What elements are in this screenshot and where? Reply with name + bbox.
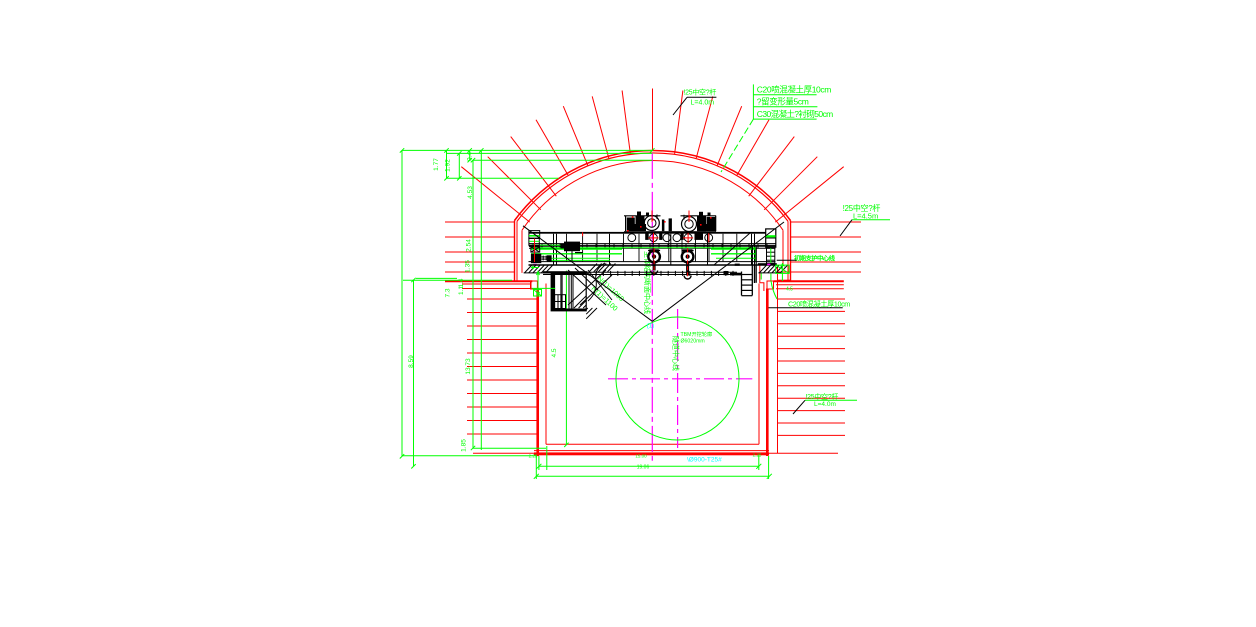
svg-text:?留变形量5cm: ?留变形量5cm — [757, 97, 809, 107]
svg-text:\Ø900-T25#: \Ø900-T25# — [687, 457, 722, 464]
svg-text:L=4.0m: L=4.0m — [691, 100, 715, 107]
svg-text:!25中空?杆: !25中空?杆 — [684, 88, 717, 97]
svg-text:L=4.0m: L=4.0m — [814, 401, 836, 408]
svg-text:(1): (1) — [647, 323, 654, 329]
svg-text:1.77: 1.77 — [433, 158, 440, 171]
svg-text:1.35: 1.35 — [465, 260, 472, 273]
svg-text:Ø6020mm: Ø6020mm — [681, 339, 705, 345]
svg-text:TBM开挖轮廓: TBM开挖轮廓 — [681, 330, 713, 338]
svg-text:4.5: 4.5 — [786, 287, 793, 293]
svg-text:C20喷混凝土厚10cm: C20喷混凝土厚10cm — [757, 85, 831, 95]
svg-text:8.59: 8.59 — [408, 355, 415, 368]
svg-text:2.25: 2.25 — [529, 454, 538, 459]
svg-text:!25中空?杆: !25中空?杆 — [806, 392, 839, 401]
svg-text:1.85: 1.85 — [461, 439, 468, 452]
svg-text:1.92: 1.92 — [445, 159, 452, 172]
svg-text:19.06: 19.06 — [637, 465, 650, 471]
svg-text:隧道中心线: 隧道中心线 — [672, 336, 681, 371]
svg-text:4.53: 4.53 — [467, 186, 474, 199]
svg-text:13.73: 13.73 — [465, 358, 472, 375]
svg-text:2.54: 2.54 — [466, 239, 473, 252]
svg-text:4.5: 4.5 — [551, 348, 558, 357]
svg-text:2.25: 2.25 — [753, 453, 762, 458]
svg-text:初期支护中心线: 初期支护中心线 — [793, 254, 836, 262]
svg-text:0.4: 0.4 — [467, 152, 474, 161]
svg-text:15.00: 15.00 — [635, 454, 647, 459]
svg-text:C20喷混凝土厚10cm: C20喷混凝土厚10cm — [788, 299, 850, 308]
svg-text:1.1: 1.1 — [458, 286, 465, 295]
svg-text:C30混凝土?衬砌50cm: C30混凝土?衬砌50cm — [757, 109, 833, 119]
svg-text:7.3: 7.3 — [445, 288, 452, 297]
